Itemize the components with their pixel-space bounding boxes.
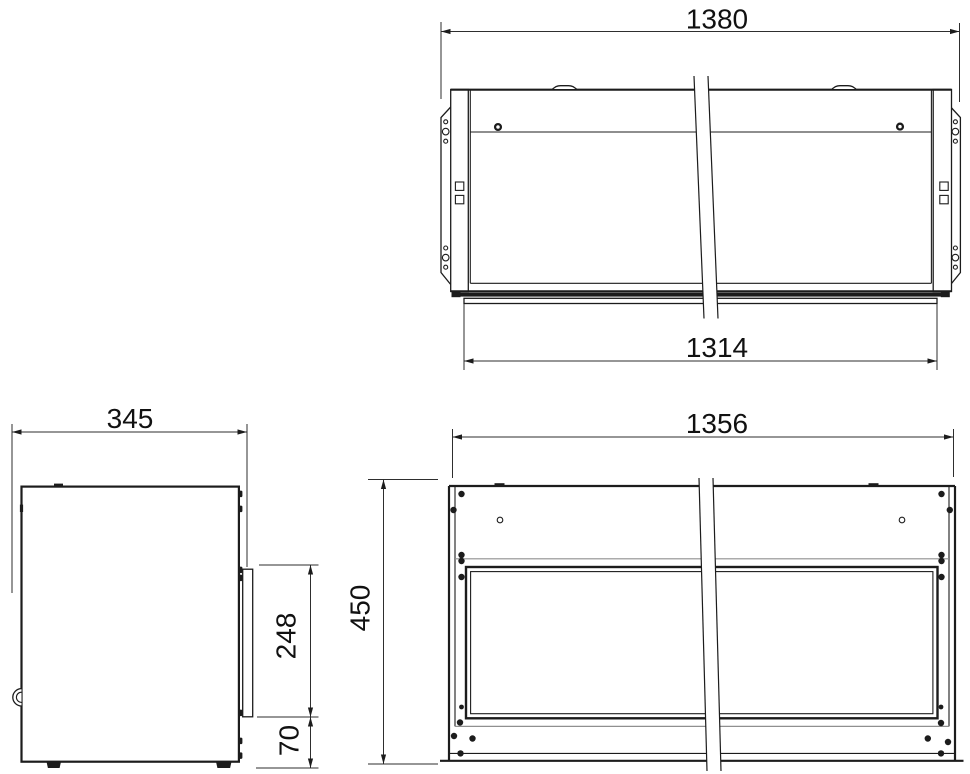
foot-left <box>47 762 62 768</box>
dim-body-width-1356: 1356 <box>453 408 954 478</box>
dim-height-450: 450 <box>345 480 439 765</box>
mounting-bracket <box>243 569 253 717</box>
dim-label-1380: 1380 <box>686 4 748 35</box>
left-mounting-flange <box>441 107 451 285</box>
right-side-rail <box>931 90 951 292</box>
lifting-tab-right <box>832 86 856 89</box>
cable-gland <box>13 689 22 706</box>
dim-label-248: 248 <box>271 613 302 660</box>
view-side: 345 <box>12 403 319 768</box>
dim-label-1356: 1356 <box>686 408 748 439</box>
dim-base-width-1314: 1314 <box>464 304 937 370</box>
pilot-hole-right <box>899 517 905 523</box>
view-top-plan: 1380 <box>441 4 960 371</box>
dim-label-70: 70 <box>274 725 305 756</box>
lifting-tab-left <box>553 86 577 89</box>
view-front: 1356 450 <box>345 408 964 771</box>
foot-right <box>216 762 232 768</box>
base-plate <box>464 298 937 303</box>
pilot-hole-left <box>497 517 503 523</box>
dim-label-345: 345 <box>107 403 154 434</box>
dim-depth-345: 345 <box>12 403 247 593</box>
screw-hole-right <box>897 124 903 130</box>
left-side-rail <box>451 90 471 292</box>
dim-label-450: 450 <box>345 585 376 632</box>
break-lines-top-view <box>694 76 718 319</box>
dim-bracket-height-248: 248 <box>257 565 319 717</box>
right-mounting-flange <box>951 107 961 285</box>
screw-hole-left <box>495 124 501 130</box>
dim-bottom-offset-70: 70 <box>256 717 319 768</box>
gasket-strip <box>456 292 941 296</box>
drawing-sheet: 1380 <box>0 0 970 774</box>
dim-label-1314: 1314 <box>686 332 748 363</box>
side-view-body <box>13 484 253 768</box>
technical-drawing: 1380 <box>0 0 970 774</box>
